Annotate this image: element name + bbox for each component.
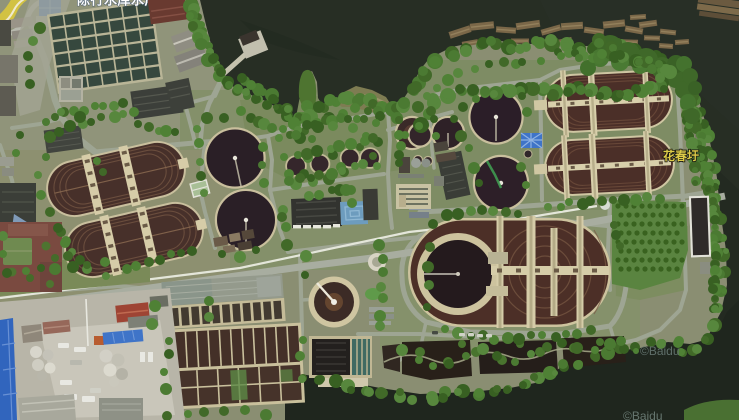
svg-text:花春圩: 花春圩 xyxy=(663,148,699,163)
svg-text:©Baidu: ©Baidu xyxy=(640,344,680,358)
svg-text:©Baidu: ©Baidu xyxy=(623,409,663,420)
svg-text:陈行水库水厂: 陈行水库水厂 xyxy=(77,0,158,8)
